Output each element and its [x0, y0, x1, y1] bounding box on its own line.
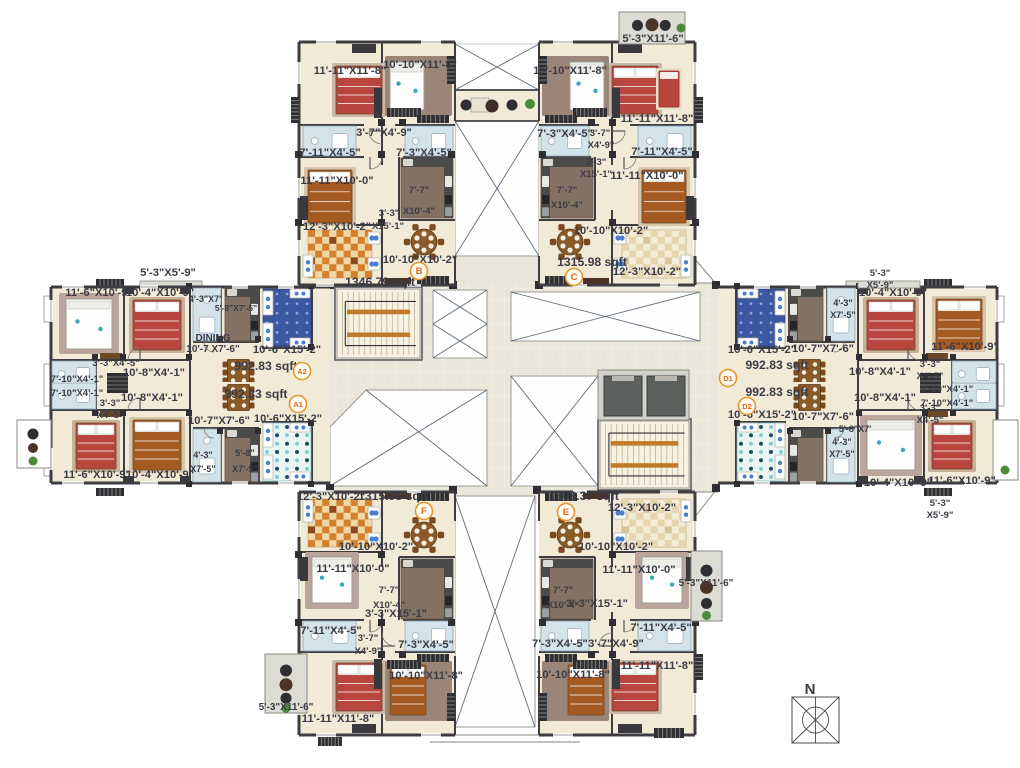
svg-text:X4'-5": X4'-5": [917, 371, 944, 382]
svg-text:X4'-5": X4'-5": [97, 410, 124, 421]
svg-text:11'-11"X10'-0": 11'-11"X10'-0": [602, 564, 675, 576]
svg-text:3'-7": 3'-7": [358, 633, 379, 644]
svg-text:7'-7": 7'-7": [557, 185, 578, 196]
svg-text:X10'-4": X10'-4": [551, 200, 583, 211]
svg-text:7'-10"X4'-1": 7'-10"X4'-1": [51, 374, 104, 385]
svg-text:A2: A2: [297, 367, 307, 376]
svg-text:992.83 sqft: 992.83 sqft: [224, 387, 287, 401]
svg-text:3'-3": 3'-3": [100, 398, 121, 409]
svg-text:10'-7"X7'-6": 10'-7"X7'-6": [188, 415, 250, 427]
svg-text:10'-8"X4'-1": 10'-8"X4'-1": [854, 392, 916, 404]
svg-text:5'-3"X5'-9": 5'-3"X5'-9": [140, 267, 196, 279]
svg-text:10'-7 X7'-6": 10'-7 X7'-6": [186, 344, 240, 355]
svg-text:C: C: [571, 272, 578, 283]
svg-text:3'-3": 3'-3": [379, 208, 400, 219]
svg-text:X5'-9": X5'-9": [927, 510, 954, 521]
svg-text:3'-7"X4'-9": 3'-7"X4'-9": [356, 127, 412, 139]
svg-text:7'-3"X4'-5": 7'-3"X4'-5": [537, 128, 593, 140]
svg-text:12'-3"X10'-2": 12'-3"X10'-2": [297, 491, 365, 503]
svg-text:5'-8"X7'-5": 5'-8"X7'-5": [215, 303, 257, 313]
svg-text:10'-8"X4'-1": 10'-8"X4'-1": [121, 392, 183, 404]
svg-text:7'-10"X4'-1": 7'-10"X4'-1": [51, 388, 104, 399]
svg-text:1315.98 sqft: 1315.98 sqft: [358, 489, 428, 503]
svg-text:D2: D2: [742, 402, 752, 411]
svg-text:10'-4"X10'-9": 10'-4"X10'-9": [864, 477, 932, 489]
svg-text:3'-3": 3'-3": [586, 157, 607, 168]
svg-text:7'-11"X4'-5": 7'-11"X4'-5": [631, 146, 692, 158]
svg-text:11'-6"X10'-9": 11'-6"X10'-9": [928, 475, 996, 487]
svg-text:7'-3"X4'-5": 7'-3"X4'-5": [398, 639, 454, 651]
svg-text:7'-3"X4'-5": 7'-3"X4'-5": [532, 638, 588, 650]
svg-text:3'-3": 3'-3": [920, 359, 941, 370]
svg-text:F: F: [421, 506, 427, 517]
svg-text:11'-11"X11'-8": 11'-11"X11'-8": [302, 713, 375, 725]
svg-text:7'-11"X4'-5": 7'-11"X4'-5": [630, 622, 691, 634]
svg-text:11'-11"X10'-0": 11'-11"X10'-0": [316, 563, 389, 575]
svg-text:7'-3"X4'-5": 7'-3"X4'-5": [396, 147, 452, 159]
svg-text:992.83 sqft: 992.83 sqft: [234, 359, 297, 373]
svg-text:10'-6"X15'-2": 10'-6"X15'-2": [254, 413, 322, 425]
svg-text:4'-3": 4'-3": [833, 298, 852, 308]
svg-text:X7'-5": X7'-5": [830, 310, 855, 320]
svg-text:10'-6"X15'-2": 10'-6"X15'-2": [253, 344, 321, 356]
svg-text:E: E: [563, 507, 569, 518]
svg-text:10'-4"X10'-9": 10'-4"X10'-9": [126, 469, 194, 481]
svg-text:1315.98 sqft: 1315.98 sqft: [557, 255, 627, 269]
svg-text:B: B: [416, 266, 423, 277]
svg-text:10'-7"X7'-6": 10'-7"X7'-6": [792, 343, 854, 355]
svg-text:X7'-5": X7'-5": [190, 464, 215, 474]
svg-text:11'-6"X10'-9": 11'-6"X10'-9": [63, 469, 131, 481]
svg-text:X5'-9": X5'-9": [867, 280, 894, 291]
svg-text:5'-8"X7': 5'-8"X7': [839, 424, 872, 434]
svg-text:3'-3"X15'-1": 3'-3"X15'-1": [365, 608, 427, 620]
svg-text:3'-3"X15'-1": 3'-3"X15'-1": [566, 598, 628, 610]
svg-text:10'-6"X15'-2": 10'-6"X15'-2": [728, 409, 796, 421]
svg-text:7'-10"X4'-1": 7'-10"X4'-1": [921, 384, 974, 395]
svg-text:X4'-5": X4'-5": [917, 415, 944, 426]
svg-text:11'-6"X10'-9": 11'-6"X10'-9": [65, 287, 133, 299]
svg-text:10'-6"X15'-2": 10'-6"X15'-2": [728, 344, 796, 356]
svg-text:11'-11"X11'-8": 11'-11"X11'-8": [621, 660, 694, 672]
svg-text:4'-3": 4'-3": [193, 450, 212, 460]
svg-text:12'-3"X10'-2": 12'-3"X10'-2": [303, 221, 371, 233]
svg-text:X15'-1": X15'-1": [372, 221, 404, 232]
svg-text:5'-8": 5'-8": [235, 448, 254, 458]
svg-text:7'-11"X4'-5": 7'-11"X4'-5": [299, 147, 360, 159]
svg-text:10'-4"X10'-9": 10'-4"X10'-9": [126, 287, 194, 299]
svg-text:10'-10"X11'-8": 10'-10"X11'-8": [536, 669, 610, 681]
svg-text:10'-10"X10'-2": 10'-10"X10'-2": [574, 225, 648, 237]
svg-text:5'-3": 5'-3": [930, 498, 951, 509]
svg-text:5'-3"X11'-6": 5'-3"X11'-6": [259, 702, 314, 713]
svg-text:X15'-1": X15'-1": [580, 169, 612, 180]
svg-text:4'-3": 4'-3": [832, 437, 851, 447]
svg-text:1303.37 sqft: 1303.37 sqft: [549, 489, 619, 503]
svg-text:992.83 sqft: 992.83 sqft: [745, 358, 808, 372]
svg-text:5'-3": 5'-3": [870, 268, 891, 279]
svg-text:X4'-9": X4'-9": [355, 646, 382, 657]
svg-text:A1: A1: [293, 400, 303, 409]
svg-text:D1: D1: [723, 374, 733, 383]
svg-text:DINING: DINING: [196, 333, 231, 344]
svg-text:X4'-9": X4'-9": [588, 140, 615, 151]
svg-text:10'-8"X4'-1": 10'-8"X4'-1": [849, 366, 911, 378]
svg-text:X10'-4": X10'-4": [403, 206, 435, 217]
svg-text:N: N: [805, 681, 816, 698]
svg-text:10'-8"X4'-1": 10'-8"X4'-1": [123, 367, 185, 379]
svg-text:5'-3"X11'-6": 5'-3"X11'-6": [622, 33, 683, 45]
svg-text:1346.79 sqft: 1346.79 sqft: [345, 275, 415, 289]
svg-text:7'-7": 7'-7": [379, 585, 400, 596]
svg-text:7'-7": 7'-7": [409, 185, 430, 196]
svg-text:11'-11"X10'-0": 11'-11"X10'-0": [300, 175, 373, 187]
svg-text:11'-11"X10'-0": 11'-11"X10'-0": [610, 170, 683, 182]
svg-text:11'-11"X11'-8": 11'-11"X11'-8": [621, 113, 694, 125]
svg-text:3'-3": 3'-3": [920, 403, 941, 414]
svg-text:11'-6"X10'-9": 11'-6"X10'-9": [931, 341, 999, 353]
svg-text:X7'-5": X7'-5": [232, 464, 257, 474]
svg-text:10'-10"X11'-8": 10'-10"X11'-8": [389, 670, 463, 682]
svg-text:12'-3"X10'-2": 12'-3"X10'-2": [608, 502, 676, 514]
svg-text:7'-11"X4'-5": 7'-11"X4'-5": [300, 625, 361, 637]
svg-text:10'-7"X7'-6": 10'-7"X7'-6": [792, 411, 854, 423]
svg-text:10'-10"X11'-8": 10'-10"X11'-8": [533, 65, 607, 77]
svg-text:992.83 sqft: 992.83 sqft: [745, 385, 808, 399]
svg-text:11'-11"X11'-8": 11'-11"X11'-8": [314, 65, 387, 77]
svg-text:10'-10"X10'-2": 10'-10"X10'-2": [579, 541, 653, 553]
svg-text:X7'-5": X7'-5": [829, 449, 854, 459]
svg-text:10'-10"X11'-8": 10'-10"X11'-8": [383, 59, 457, 71]
svg-text:10'-10"X10'-2": 10'-10"X10'-2": [339, 541, 413, 553]
svg-text:3'-7"X4'-9": 3'-7"X4'-9": [588, 638, 644, 650]
svg-text:5'-3"X11'-6": 5'-3"X11'-6": [679, 578, 734, 589]
svg-text:7'-7": 7'-7": [553, 585, 574, 596]
